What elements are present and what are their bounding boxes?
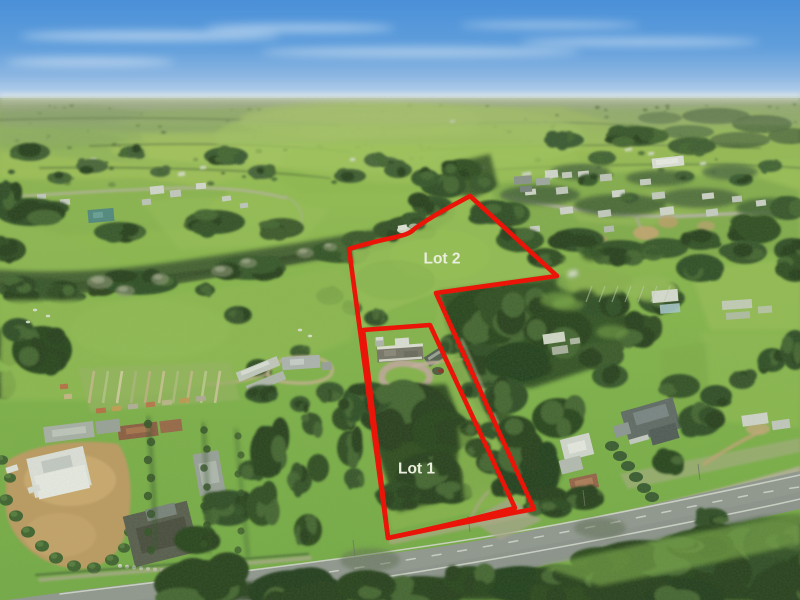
svg-text:Lot 2: Lot 2 (423, 251, 460, 268)
svg-text:Lot 1: Lot 1 (398, 461, 435, 478)
